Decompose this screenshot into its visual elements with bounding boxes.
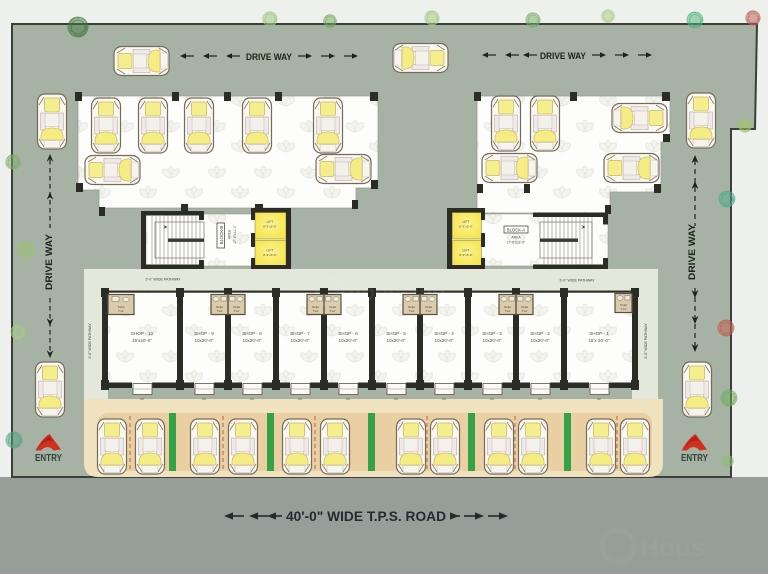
svg-text:LIFT: LIFT [463, 220, 470, 224]
svg-text:10x20'-0": 10x20'-0" [242, 338, 261, 343]
svg-text:UP: UP [442, 397, 446, 401]
svg-text:SHOP - 7: SHOP - 7 [290, 331, 310, 336]
svg-text:DRIVE WAY: DRIVE WAY [687, 223, 698, 280]
svg-text:ENTRY: ENTRY [35, 453, 62, 464]
svg-text:houssing: houssing [348, 280, 446, 305]
svg-text:10x20'-0": 10x20'-0" [530, 338, 549, 343]
svg-text:7'x4': 7'x4' [505, 309, 511, 313]
svg-text:10x20'-0": 10x20'-0" [482, 338, 501, 343]
svg-text:SHOP - 10: SHOP - 10 [131, 331, 154, 336]
svg-text:7'x4': 7'x4' [313, 309, 319, 313]
svg-text:UP: UP [250, 397, 254, 401]
svg-text:7'x4': 7'x4' [234, 309, 240, 313]
svg-text:10x20'-0": 10x20'-0" [290, 338, 309, 343]
svg-text:7'x4': 7'x4' [118, 309, 124, 313]
svg-text:3'-0" WIDE PATHWAY: 3'-0" WIDE PATHWAY [559, 279, 595, 283]
svg-text:17'-6"x11'-0": 17'-6"x11'-0" [233, 224, 237, 244]
svg-text:8'-3"x5'-6": 8'-3"x5'-6" [459, 253, 472, 257]
svg-text:UP: UP [490, 397, 494, 401]
svg-text:3'-0" WIDE PATHWAY: 3'-0" WIDE PATHWAY [644, 323, 648, 359]
svg-text:UP: UP [597, 397, 601, 401]
svg-text:7'x4': 7'x4' [426, 309, 432, 313]
svg-text:DRIVE WAY: DRIVE WAY [540, 51, 587, 62]
svg-text:LIFT: LIFT [267, 249, 274, 253]
svg-text:SHOP - 8: SHOP - 8 [242, 331, 262, 336]
svg-text:SHOP - 2: SHOP - 2 [530, 331, 550, 336]
svg-text:8'-3"x5'-6": 8'-3"x5'-6" [459, 225, 472, 229]
svg-text:40'-0" WIDE T.P.S. ROAD: 40'-0" WIDE T.P.S. ROAD [286, 509, 446, 524]
svg-text:7'x4': 7'x4' [409, 309, 415, 313]
svg-text:SHOP - 9: SHOP - 9 [194, 331, 214, 336]
svg-text:7'x4': 7'x4' [330, 309, 336, 313]
svg-text:UP: UP [140, 397, 144, 401]
svg-text:BLOCK-B: BLOCK-B [219, 226, 224, 245]
svg-text:7'x4': 7'x4' [217, 309, 223, 313]
svg-text:17'-6"x11'-0": 17'-6"x11'-0" [507, 241, 527, 245]
svg-text:DRIVE WAY: DRIVE WAY [246, 52, 293, 63]
svg-text:8'-3"x5'-6": 8'-3"x5'-6" [263, 225, 276, 229]
svg-text:Hous: Hous [640, 532, 705, 562]
svg-text:10x20'-0": 10x20'-0" [338, 338, 357, 343]
svg-text:7'x4': 7'x4' [522, 309, 528, 313]
svg-text:LIFT: LIFT [267, 220, 274, 224]
svg-text:UP: UP [538, 397, 542, 401]
svg-text:LIFT: LIFT [463, 249, 470, 253]
svg-text:10x20'-0": 10x20'-0" [434, 338, 453, 343]
svg-text:3'-0" WIDE PATHWAY: 3'-0" WIDE PATHWAY [88, 323, 92, 359]
svg-text:BLOCK-A: BLOCK-A [507, 228, 526, 233]
svg-text:SHOP - 1: SHOP - 1 [589, 331, 609, 336]
svg-text:AREA: AREA [228, 229, 232, 239]
svg-text:15'x 20'-0": 15'x 20'-0" [588, 338, 610, 343]
svg-text:8'-3"x5'-6": 8'-3"x5'-6" [263, 253, 276, 257]
svg-text:ENTRY: ENTRY [681, 453, 708, 464]
svg-text:UP: UP [202, 397, 206, 401]
svg-text:UP: UP [394, 397, 398, 401]
svg-text:10x20'-0": 10x20'-0" [194, 338, 213, 343]
svg-text:SHOP - 3: SHOP - 3 [482, 331, 502, 336]
svg-text:7'x4': 7'x4' [621, 307, 627, 311]
svg-text:AREA: AREA [511, 236, 521, 240]
svg-text:UP: UP [346, 397, 350, 401]
svg-text:10x20'-0": 10x20'-0" [386, 338, 405, 343]
svg-text:15'x20'-0": 15'x20'-0" [132, 338, 152, 343]
svg-text:SHOP - 6: SHOP - 6 [338, 331, 358, 336]
svg-text:SHOP - 5: SHOP - 5 [386, 331, 406, 336]
svg-text:DRIVE WAY: DRIVE WAY [44, 233, 55, 290]
svg-text:UP: UP [298, 397, 302, 401]
svg-text:SHOP - 4: SHOP - 4 [434, 331, 454, 336]
svg-text:3'-0" WIDE PATHWAY: 3'-0" WIDE PATHWAY [145, 278, 181, 282]
